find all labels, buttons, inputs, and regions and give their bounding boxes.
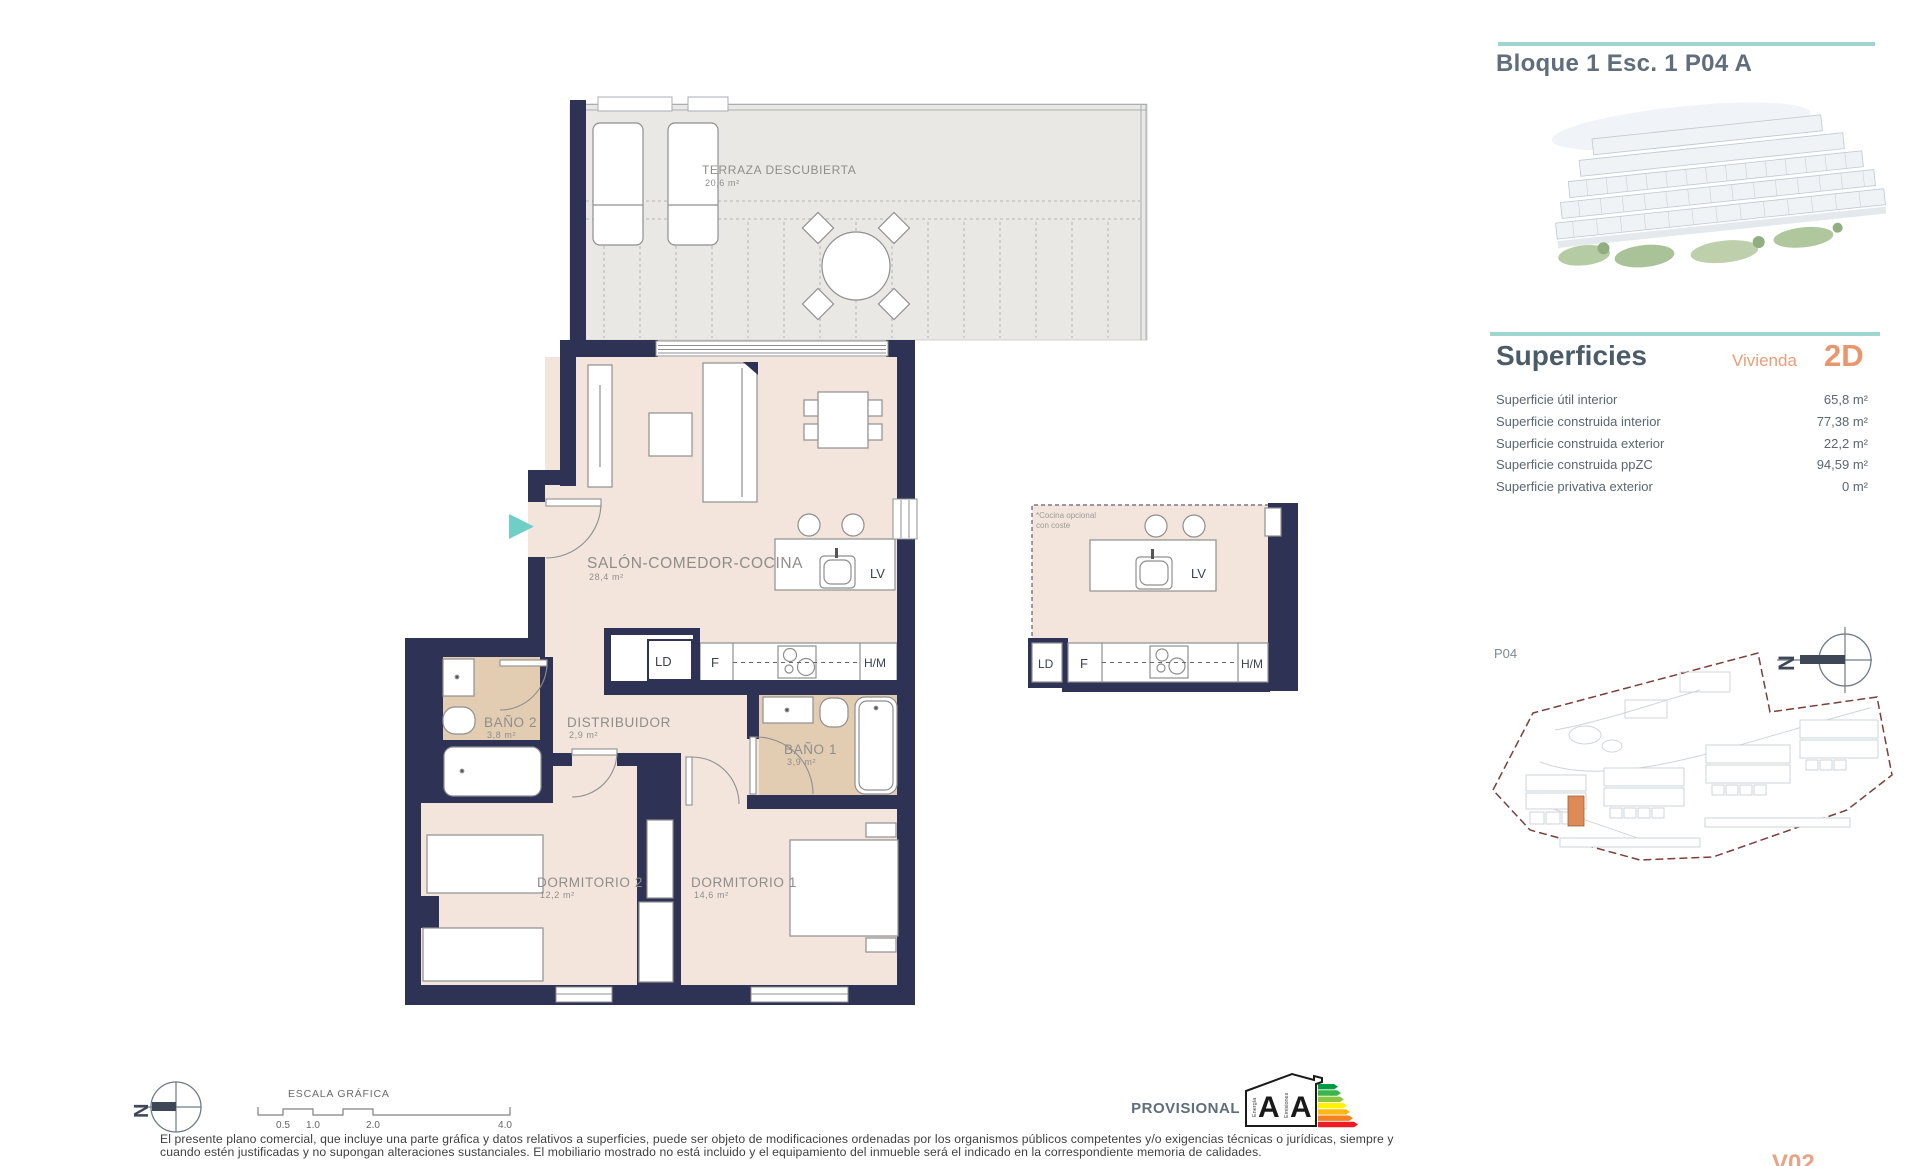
row-label: Superficie útil interior [1496, 392, 1617, 414]
bed-icon [427, 835, 543, 893]
emissions-letter: A [1290, 1091, 1312, 1124]
stool-icon [798, 514, 820, 536]
toilet-icon [443, 707, 475, 734]
terrace-planters [598, 97, 728, 111]
double-bed-icon [790, 840, 898, 936]
room-area-distribuidor: 2,9 m² [569, 730, 598, 740]
site-buildings [1526, 720, 1878, 847]
nightstand-icon [866, 938, 896, 952]
room-area-dorm1: 14,6 m² [694, 890, 729, 900]
room-label-dorm1: DORMITORIO 1 [691, 875, 797, 890]
row-value: 0 m² [1842, 479, 1868, 501]
header-rule [1498, 42, 1875, 46]
emissions-axis-label: Emisiones [1284, 1092, 1290, 1118]
row-value: 94,59 m² [1817, 457, 1868, 479]
north-letter: N [131, 1104, 153, 1118]
north-compass-icon: N [131, 1082, 201, 1132]
laundry-closet [611, 635, 693, 681]
provisional-stamp: PROVISIONAL [1040, 1100, 1240, 1117]
label-hm: H/M [1241, 657, 1263, 671]
room-area-salon: 28,4 m² [589, 572, 624, 582]
table-row: Superficie construida ppZC 94,59 m² [1496, 457, 1868, 479]
stool-icon [1183, 515, 1205, 537]
bed-icon [423, 928, 543, 981]
room-label-distribuidor: DISTRIBUIDOR [567, 715, 671, 730]
row-label: Superficie construida exterior [1496, 436, 1664, 458]
row-value: 65,8 m² [1824, 392, 1868, 414]
superficies-heading: Superficies [1496, 340, 1647, 372]
label-ld: LD [655, 654, 672, 669]
superficies-rule [1490, 332, 1880, 336]
nightstand-icon [866, 823, 896, 837]
highlighted-unit [1568, 796, 1584, 826]
room-label-dorm2: DORMITORIO 2 [537, 875, 643, 890]
energy-rating-icon: A A Energía Emisiones [1246, 1074, 1358, 1127]
plan-sheet: TERRAZA DESCUBIERTA 20,6 m² SALÓN-COMEDO… [0, 0, 1920, 1166]
label-f: F [711, 655, 719, 670]
energy-arrows [1318, 1084, 1358, 1127]
label-f: F [1080, 656, 1088, 671]
scale-tick: 2.0 [366, 1120, 380, 1131]
door-leaf [750, 737, 756, 794]
stool-icon [842, 514, 864, 536]
label-lv: LV [870, 566, 885, 581]
scale-bar [258, 1107, 510, 1115]
window-icon [1265, 508, 1281, 536]
room-label-bano1: BAÑO 1 [784, 742, 837, 757]
stool-icon [1145, 515, 1167, 537]
chair-icon [868, 400, 882, 416]
site-plan-floor-label: P04 [1494, 646, 1517, 661]
toilet-icon [820, 698, 848, 727]
wardrobe-icon [647, 820, 673, 898]
row-value: 22,2 m² [1824, 436, 1868, 458]
chair-icon [868, 424, 882, 440]
window-icon [893, 499, 917, 539]
room-label-salon: SALÓN-COMEDOR-COCINA [587, 555, 803, 572]
building-illustration [1544, 86, 1890, 280]
page-title: Bloque 1 Esc. 1 P04 A [1496, 50, 1752, 78]
label-lv: LV [1191, 566, 1206, 581]
vivienda-code: 2D [1824, 338, 1864, 374]
chair-icon [804, 400, 818, 416]
energy-letter: A [1258, 1091, 1280, 1124]
floor-plan-canvas: TERRAZA DESCUBIERTA 20,6 m² SALÓN-COMEDO… [0, 0, 1920, 1166]
terrace-glazing [656, 341, 888, 356]
detail-note-line1: *Cocina opcional [1036, 511, 1096, 520]
table-row: Superficie privativa exterior 0 m² [1496, 479, 1868, 501]
north-compass-icon: N [1774, 627, 1872, 693]
disclaimer-line2: cuando estén justificadas y no supongan … [160, 1146, 1720, 1159]
table-row: Superficie construida interior 77,38 m² [1496, 414, 1868, 436]
table-row: Superficie útil interior 65,8 m² [1496, 392, 1868, 414]
sun-lounger-icon [593, 123, 643, 245]
kitchen-detail-plan: *Cocina opcional con coste LV LD F H/M [1028, 503, 1298, 692]
door-leaf [572, 749, 617, 755]
row-label: Superficie construida interior [1496, 414, 1661, 436]
superficies-header: Superficies Vivienda 2D [1496, 340, 1876, 376]
superficies-table: Superficie útil interior 65,8 m² Superfi… [1496, 392, 1868, 501]
scale-tick: 0.5 [276, 1120, 290, 1131]
room-area-terraza: 20,6 m² [705, 178, 740, 188]
vivienda-label: Vivienda [1732, 351, 1797, 371]
table-row: Superficie construida exterior 22,2 m² [1496, 436, 1868, 458]
room-label-bano2: BAÑO 2 [484, 715, 537, 730]
disclaimer-text: El presente plano comercial, que incluye… [160, 1133, 1720, 1159]
site-plan: N [1493, 627, 1892, 860]
door-leaf [500, 660, 547, 666]
room-area-bano2: 3,8 m² [487, 730, 516, 740]
round-table-icon [822, 232, 890, 300]
sofa-icon [703, 363, 757, 502]
coffee-table-icon [649, 413, 692, 456]
bathtub-icon [444, 747, 541, 796]
label-ld: LD [1038, 657, 1054, 671]
north-letter: N [1774, 655, 1799, 671]
graphic-scale: ESCALA GRÁFICA 0.5 1.0 2.0 4.0 [258, 1087, 512, 1131]
detail-note-line2: con coste [1036, 521, 1071, 530]
scale-tick: 4.0 [498, 1120, 512, 1131]
door-leaf [686, 757, 692, 805]
label-hm: H/M [864, 656, 886, 670]
room-label-terraza: TERRAZA DESCUBIERTA [702, 163, 856, 177]
scale-tick: 1.0 [306, 1120, 320, 1131]
energy-axis-label: Energía [1252, 1097, 1258, 1117]
terrace-floor [570, 104, 1147, 340]
dining-table-icon [818, 392, 868, 448]
chair-icon [804, 424, 818, 440]
room-area-dorm2: 12,2 m² [540, 890, 575, 900]
wardrobe-icon [639, 902, 673, 982]
row-label: Superficie privativa exterior [1496, 479, 1653, 501]
row-value: 77,38 m² [1817, 414, 1868, 436]
room-area-bano1: 3,9 m² [787, 757, 816, 767]
version-tag: V02 [1772, 1150, 1815, 1166]
scale-title: ESCALA GRÁFICA [288, 1087, 390, 1100]
entrance-door-leaf [546, 499, 601, 506]
disclaimer-line1: El presente plano comercial, que incluye… [160, 1133, 1720, 1146]
row-label: Superficie construida ppZC [1496, 457, 1653, 479]
